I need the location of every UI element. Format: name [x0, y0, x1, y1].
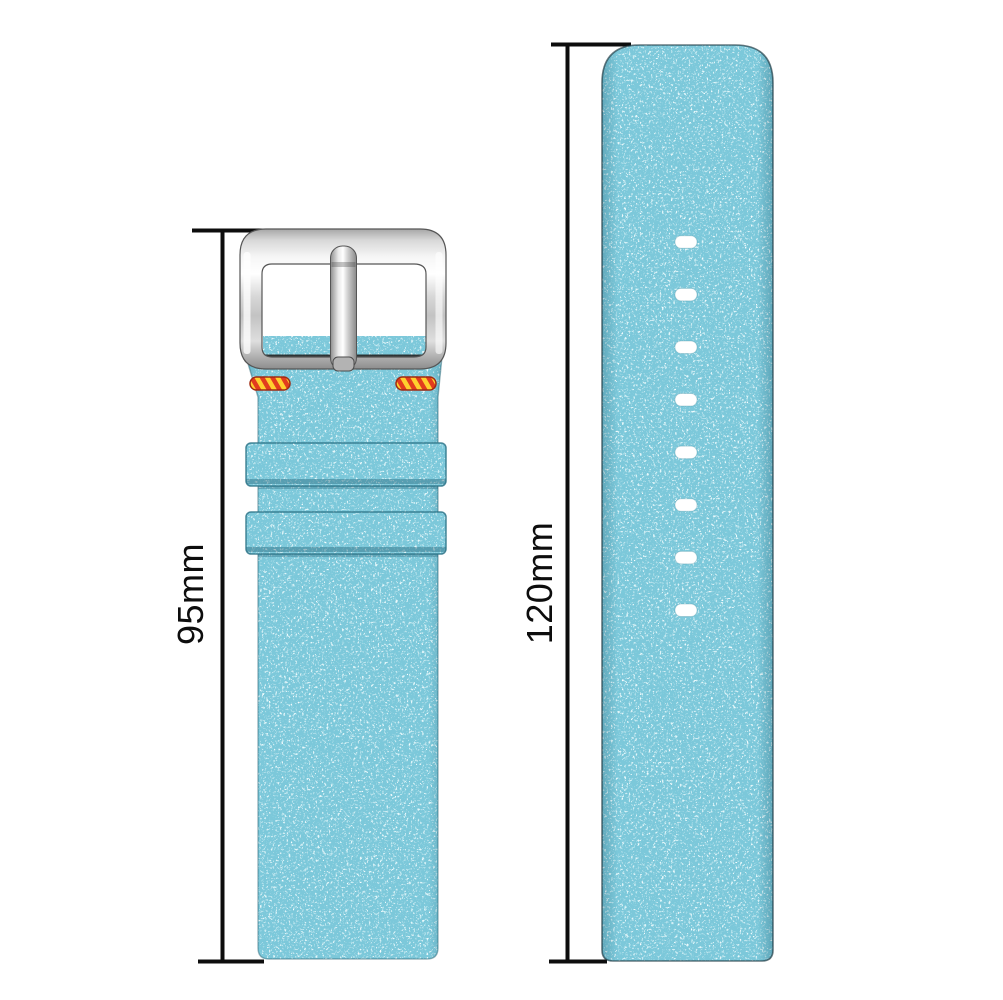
right-measurement-label: 120mm	[520, 508, 560, 658]
strap-hole	[675, 236, 697, 249]
product-image-canvas: 95mm 120mm	[0, 0, 1003, 1000]
strap-hole	[675, 341, 697, 354]
strap-hole	[675, 288, 697, 301]
strap-hole	[675, 446, 697, 459]
left-measurement-label: 95mm	[171, 524, 211, 664]
strap-hole	[675, 551, 697, 564]
keeper-loop-1	[246, 443, 446, 489]
buckle-strap	[238, 229, 450, 966]
buckle-prong-tip	[333, 357, 354, 371]
strap-illustration	[0, 0, 1003, 1000]
stitch-left	[250, 377, 290, 390]
strap-hole	[675, 394, 697, 407]
buckle-strap-fabric	[238, 330, 450, 966]
buckle-frame-highlight-left	[244, 252, 251, 354]
long-strap	[600, 43, 775, 963]
keeper-loop-2	[246, 512, 446, 557]
strap-hole	[675, 499, 697, 512]
stitch-right	[396, 377, 436, 390]
buckle-frame-highlight-right	[436, 252, 443, 354]
buckle-prong	[331, 246, 357, 371]
strap-hole	[675, 604, 697, 617]
